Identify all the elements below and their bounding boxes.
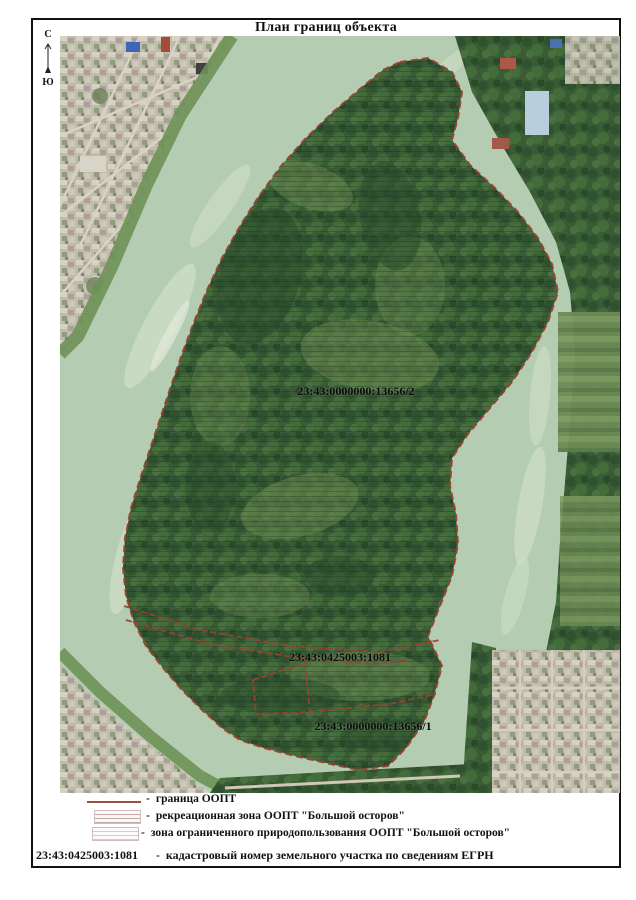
boundary-line-symbol — [87, 801, 141, 803]
legend-item-recreational-zone: - рекреационная зона ООПТ "Большой остор… — [146, 810, 405, 822]
satellite-map — [60, 36, 620, 793]
legend-dash: - — [156, 850, 160, 862]
cadastral-label-13656-1: 23:43:0000000:13656/1 — [282, 719, 464, 734]
legend-label-limited-use-zone: зона ограниченного природопользования ОО… — [151, 827, 510, 839]
compass-south-label: Ю — [40, 78, 56, 88]
page-title: План границ объекта — [31, 20, 621, 36]
legend-label-cadastral-number: кадастровый номер земельного участка по … — [166, 848, 494, 863]
legend-cadastral-number: 23:43:0425003:1081 — [36, 848, 138, 863]
limited-use-zone-swatch — [92, 827, 139, 841]
legend-label-boundary: граница ООПТ — [156, 793, 236, 805]
satellite-map-image — [60, 36, 620, 793]
north-arrow: С Ю — [40, 30, 56, 88]
legend-dash: - — [146, 810, 150, 822]
north-arrow-icon — [43, 41, 53, 77]
legend-item-cadastral-number: 23:43:0425003:1081 - кадастровый номер з… — [36, 848, 494, 863]
cadastral-label-13656-2: 23:43:0000000:13656/2 — [268, 384, 444, 399]
legend-dash: - — [146, 793, 150, 805]
recreational-zone-swatch — [94, 810, 141, 824]
legend-label-recreational-zone: рекреационная зона ООПТ "Большой осторов… — [156, 810, 405, 822]
cadastral-label-1081: 23:43:0425003:1081 — [252, 650, 428, 665]
legend-item-limited-use-zone: - зона ограниченного природопользования … — [141, 827, 510, 839]
compass-north-label: С — [40, 30, 56, 40]
legend-dash: - — [141, 827, 145, 839]
legend-item-boundary: - граница ООПТ — [146, 793, 236, 805]
